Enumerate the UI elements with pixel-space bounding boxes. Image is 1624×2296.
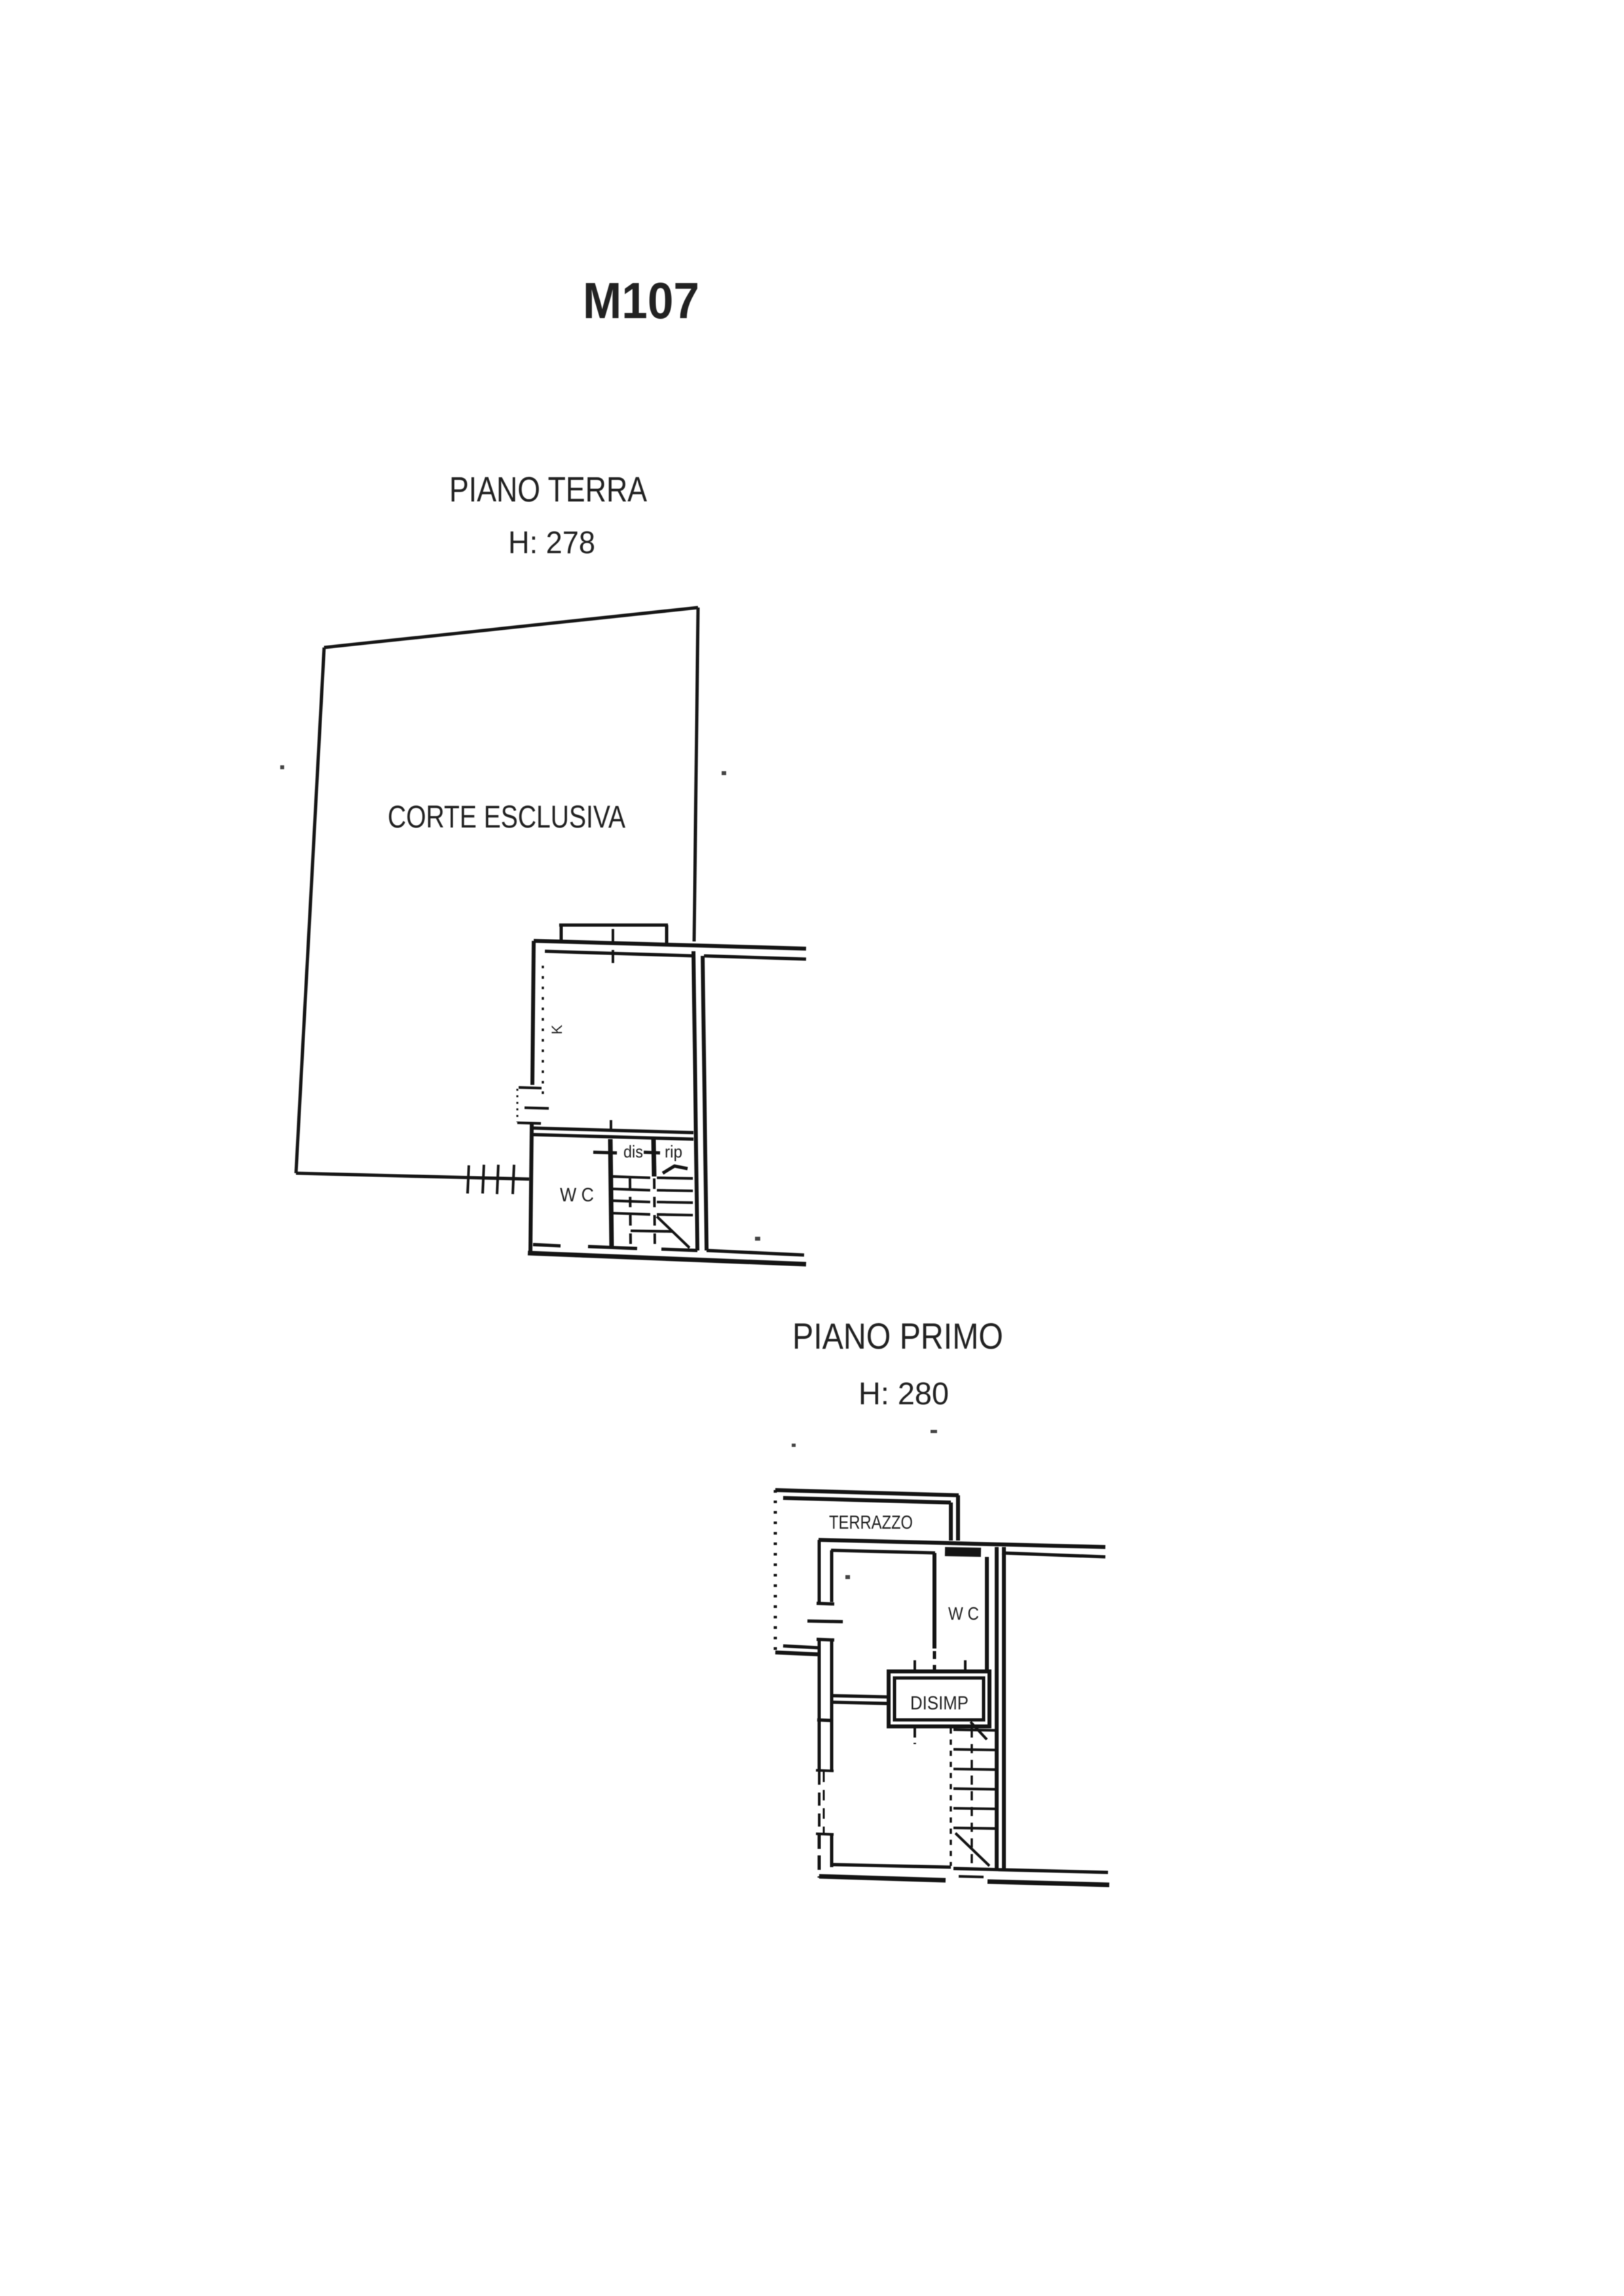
svg-text:DISIMP: DISIMP (910, 1693, 969, 1714)
svg-text:H: 278: H: 278 (508, 526, 595, 560)
svg-text:K: K (549, 1025, 565, 1034)
svg-text:W C: W C (948, 1603, 979, 1624)
svg-text:PIANO TERRA: PIANO TERRA (449, 470, 647, 509)
svg-text:dis: dis (623, 1142, 643, 1161)
svg-text:W C: W C (560, 1184, 594, 1206)
svg-text:H: 280: H: 280 (858, 1377, 949, 1412)
svg-text:CORTE ESCLUSIVA: CORTE ESCLUSIVA (388, 800, 625, 835)
svg-text:M107: M107 (583, 272, 699, 329)
svg-text:rip: rip (665, 1142, 682, 1161)
svg-text:PIANO PRIMO: PIANO PRIMO (792, 1315, 1003, 1357)
svg-text:TERRAZZO: TERRAZZO (829, 1512, 913, 1533)
